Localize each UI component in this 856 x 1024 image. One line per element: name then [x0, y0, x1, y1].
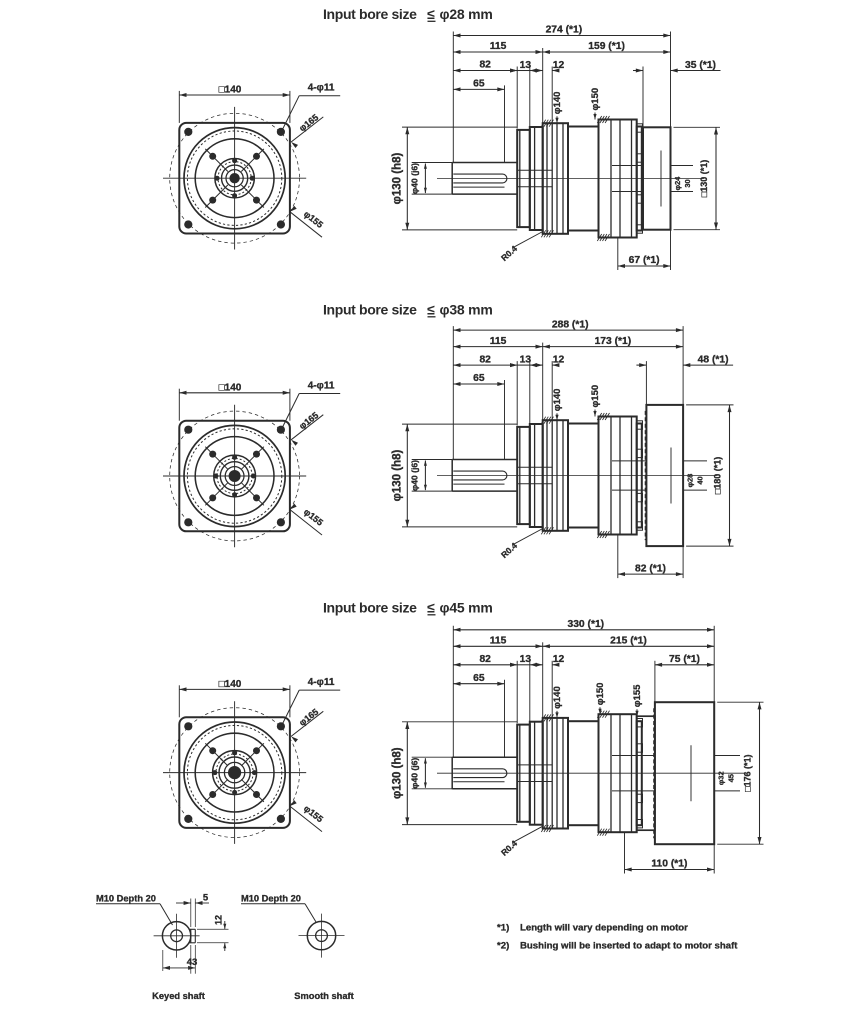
svg-text:75 (*1): 75 (*1): [669, 654, 700, 665]
svg-text:12: 12: [553, 654, 565, 665]
svg-text:Bushing will be inserted to ad: Bushing will be inserted to adapt to mot…: [520, 941, 738, 952]
svg-text:Input bore size: Input bore size: [323, 6, 417, 22]
svg-text:□140: □140: [219, 382, 242, 393]
svg-text:□180 (*1): □180 (*1): [713, 457, 723, 494]
svg-text:288 (*1): 288 (*1): [552, 319, 589, 330]
svg-text:φ40 (j6): φ40 (j6): [410, 460, 420, 491]
svg-text:82: 82: [479, 354, 491, 365]
svg-text:φ140: φ140: [552, 389, 563, 412]
svg-text:≤: ≤: [427, 600, 435, 616]
svg-text:φ28 mm: φ28 mm: [440, 6, 493, 22]
svg-text:115: 115: [490, 336, 507, 347]
svg-text:φ40 (j6): φ40 (j6): [410, 758, 420, 789]
svg-text:4-φ11: 4-φ11: [308, 83, 335, 94]
svg-text:4-φ11: 4-φ11: [308, 380, 335, 391]
svg-text:φ32: φ32: [717, 771, 726, 785]
svg-text:4-φ11: 4-φ11: [308, 677, 335, 688]
svg-text:65: 65: [473, 373, 485, 384]
svg-text:φ28: φ28: [686, 474, 695, 488]
svg-text:173 (*1): 173 (*1): [595, 336, 632, 347]
svg-text:30: 30: [683, 179, 692, 187]
svg-text:12: 12: [214, 915, 224, 925]
svg-text:65: 65: [473, 673, 485, 684]
svg-text:48 (*1): 48 (*1): [698, 355, 729, 366]
svg-text:M10 Depth 20: M10 Depth 20: [96, 894, 156, 904]
svg-text:35 (*1): 35 (*1): [685, 60, 716, 71]
svg-text:φ155: φ155: [632, 684, 643, 707]
svg-text:φ38 mm: φ38 mm: [440, 302, 493, 318]
svg-text:φ130 (h8): φ130 (h8): [392, 449, 404, 501]
svg-text:82: 82: [479, 60, 491, 71]
svg-text:Input bore size: Input bore size: [323, 302, 417, 318]
svg-text:φ40 (j6): φ40 (j6): [410, 163, 420, 194]
svg-text:φ130 (h8): φ130 (h8): [392, 747, 404, 799]
svg-text:φ130 (h8): φ130 (h8): [392, 152, 404, 204]
svg-text:330 (*1): 330 (*1): [567, 619, 604, 630]
svg-text:φ150: φ150: [595, 683, 606, 706]
svg-text:12: 12: [553, 60, 565, 71]
svg-text:φ24: φ24: [673, 176, 682, 191]
svg-text:82: 82: [479, 654, 491, 665]
svg-text:Keyed shaft: Keyed shaft: [152, 991, 205, 1001]
svg-text:□140: □140: [219, 85, 242, 96]
svg-text:110 (*1): 110 (*1): [651, 859, 687, 870]
svg-text:φ140: φ140: [552, 686, 563, 709]
svg-text:φ45 mm: φ45 mm: [440, 600, 493, 616]
svg-text:φ150: φ150: [590, 88, 601, 111]
svg-text:65: 65: [473, 79, 485, 90]
svg-text:274 (*1): 274 (*1): [546, 25, 583, 36]
svg-text:≤: ≤: [427, 6, 435, 22]
svg-text:43: 43: [187, 957, 198, 968]
svg-text:67 (*1): 67 (*1): [629, 255, 660, 266]
svg-text:*2): *2): [497, 941, 509, 952]
svg-text:215 (*1): 215 (*1): [610, 636, 647, 647]
svg-text:82 (*1): 82 (*1): [635, 563, 666, 574]
svg-text:M10 Depth 20: M10 Depth 20: [241, 894, 301, 904]
svg-text:Smooth shaft: Smooth shaft: [294, 991, 353, 1001]
svg-text:□176 (*1): □176 (*1): [743, 754, 753, 791]
svg-text:5: 5: [203, 892, 209, 903]
svg-text:13: 13: [520, 355, 532, 366]
svg-text:Length will vary depending on: Length will vary depending on motor: [520, 923, 688, 934]
svg-text:40: 40: [696, 476, 705, 484]
svg-text:115: 115: [490, 41, 507, 52]
svg-text:13: 13: [520, 60, 532, 71]
svg-text:45: 45: [727, 774, 736, 782]
svg-text:≤: ≤: [427, 302, 435, 318]
svg-text:*1): *1): [497, 923, 509, 934]
svg-text:□140: □140: [219, 679, 242, 690]
svg-text:12: 12: [553, 355, 565, 366]
svg-text:13: 13: [520, 654, 532, 665]
svg-text:115: 115: [490, 636, 507, 647]
svg-text:□130 (*1): □130 (*1): [699, 160, 709, 197]
svg-text:Input bore size: Input bore size: [323, 600, 417, 616]
svg-text:φ140: φ140: [552, 92, 563, 115]
svg-text:φ150: φ150: [590, 385, 601, 408]
svg-text:159 (*1): 159 (*1): [588, 41, 625, 52]
